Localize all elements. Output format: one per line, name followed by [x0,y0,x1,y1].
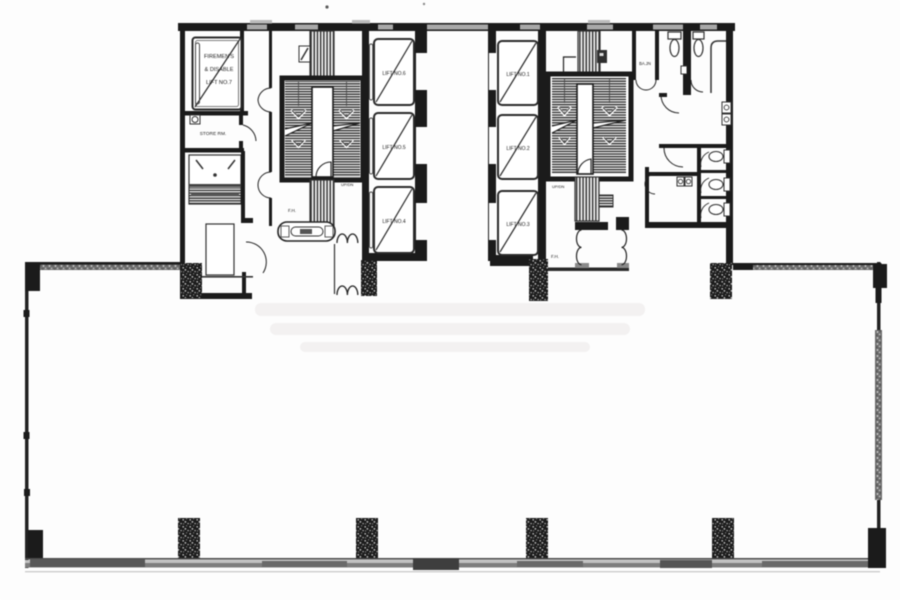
svg-text:BA.JN: BA.JN [639,61,651,66]
svg-text:LIFT NO.1: LIFT NO.1 [506,72,529,78]
svg-text:UP/DN: UP/DN [341,182,354,187]
svg-text:F.H.: F.H. [288,208,296,213]
svg-text:& DISABLE: & DISABLE [205,67,234,73]
svg-text:STORE RM.: STORE RM. [200,131,227,137]
svg-text:LIFT NO.3: LIFT NO.3 [506,222,529,228]
svg-text:LIFT NO.2: LIFT NO.2 [506,146,529,152]
svg-text:LIFT NO.7: LIFT NO.7 [206,80,232,86]
svg-text:LIFT NO.4: LIFT NO.4 [382,219,405,225]
svg-text:UP/DN: UP/DN [552,184,565,189]
svg-text:FIREMEN'S: FIREMEN'S [204,54,234,60]
svg-text:LIFT NO.6: LIFT NO.6 [382,71,405,77]
svg-text:F.H.: F.H. [551,254,559,259]
svg-text:LIFT NO.5: LIFT NO.5 [382,145,405,151]
